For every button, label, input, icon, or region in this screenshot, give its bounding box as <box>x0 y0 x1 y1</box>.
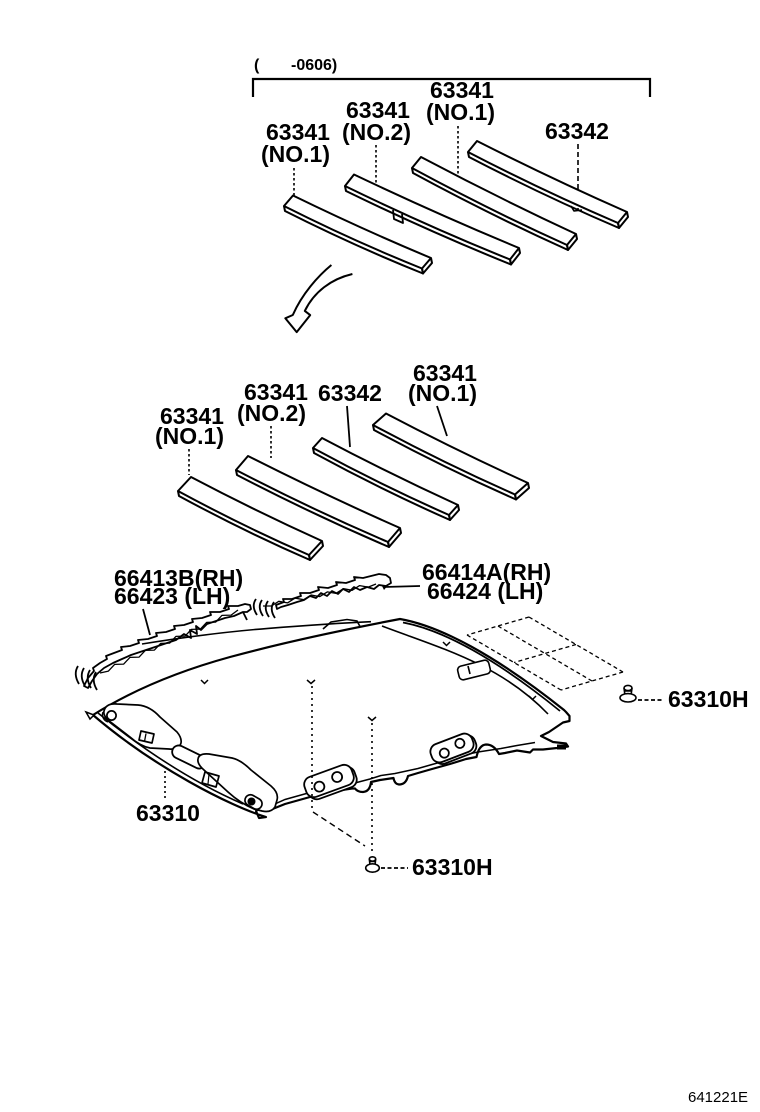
svg-text:(NO.1): (NO.1) <box>155 423 224 449</box>
svg-text:63310: 63310 <box>136 800 200 826</box>
svg-text:63342: 63342 <box>318 380 382 406</box>
svg-text:(NO.2): (NO.2) <box>342 119 411 145</box>
svg-text:63310H: 63310H <box>668 686 749 712</box>
svg-text:-0606): -0606) <box>291 57 337 74</box>
svg-text:66423 (LH): 66423 (LH) <box>114 583 230 609</box>
svg-text:66424 (LH): 66424 (LH) <box>427 578 543 604</box>
svg-text:(NO.1): (NO.1) <box>426 99 495 125</box>
svg-text:63310H: 63310H <box>412 854 493 880</box>
svg-text:641221E: 641221E <box>688 1089 748 1106</box>
svg-text:(NO.1): (NO.1) <box>261 141 330 167</box>
svg-text:(NO.1): (NO.1) <box>408 380 477 406</box>
svg-text:63342: 63342 <box>545 118 609 144</box>
svg-text:(NO.2): (NO.2) <box>237 400 306 426</box>
svg-text:(: ( <box>254 57 260 74</box>
